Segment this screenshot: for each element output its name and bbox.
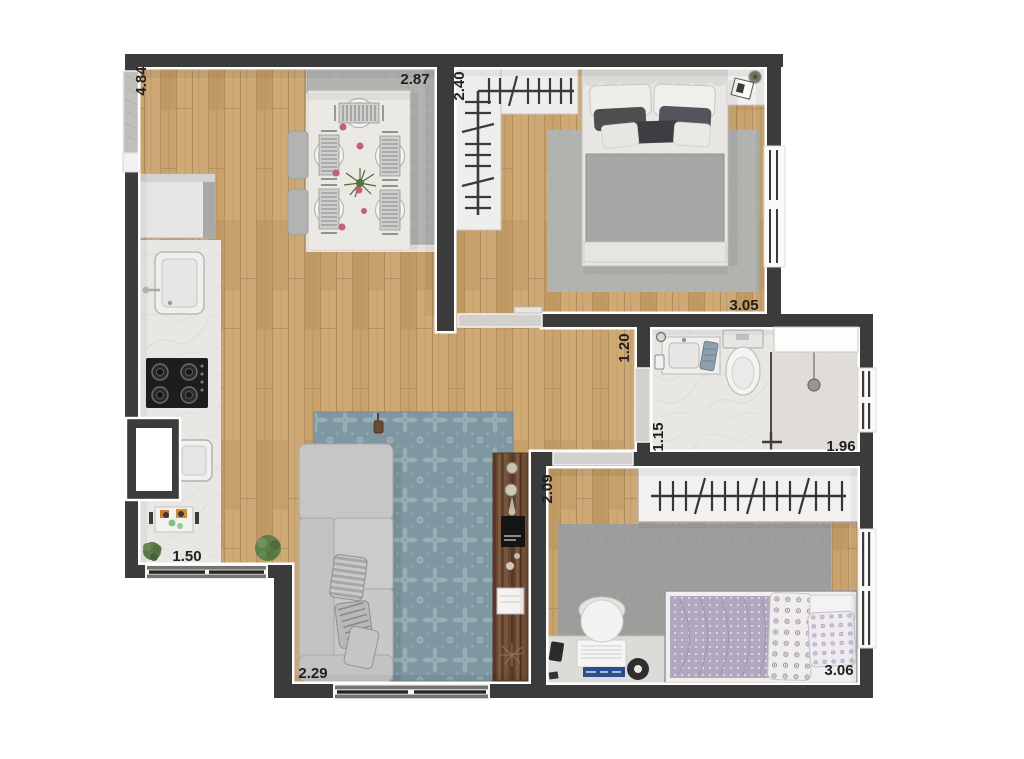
svg-text:2.09: 2.09 xyxy=(539,474,556,503)
svg-text:1.15: 1.15 xyxy=(650,422,667,451)
svg-text:2.87: 2.87 xyxy=(400,71,429,88)
svg-text:3.05: 3.05 xyxy=(729,297,758,314)
svg-text:2.29: 2.29 xyxy=(298,665,327,682)
svg-text:1.20: 1.20 xyxy=(616,333,633,362)
svg-text:4.84: 4.84 xyxy=(133,66,150,96)
svg-text:2.40: 2.40 xyxy=(451,71,468,100)
svg-text:1.96: 1.96 xyxy=(826,438,855,455)
svg-text:3.06: 3.06 xyxy=(824,662,853,679)
svg-text:1.50: 1.50 xyxy=(172,548,201,565)
